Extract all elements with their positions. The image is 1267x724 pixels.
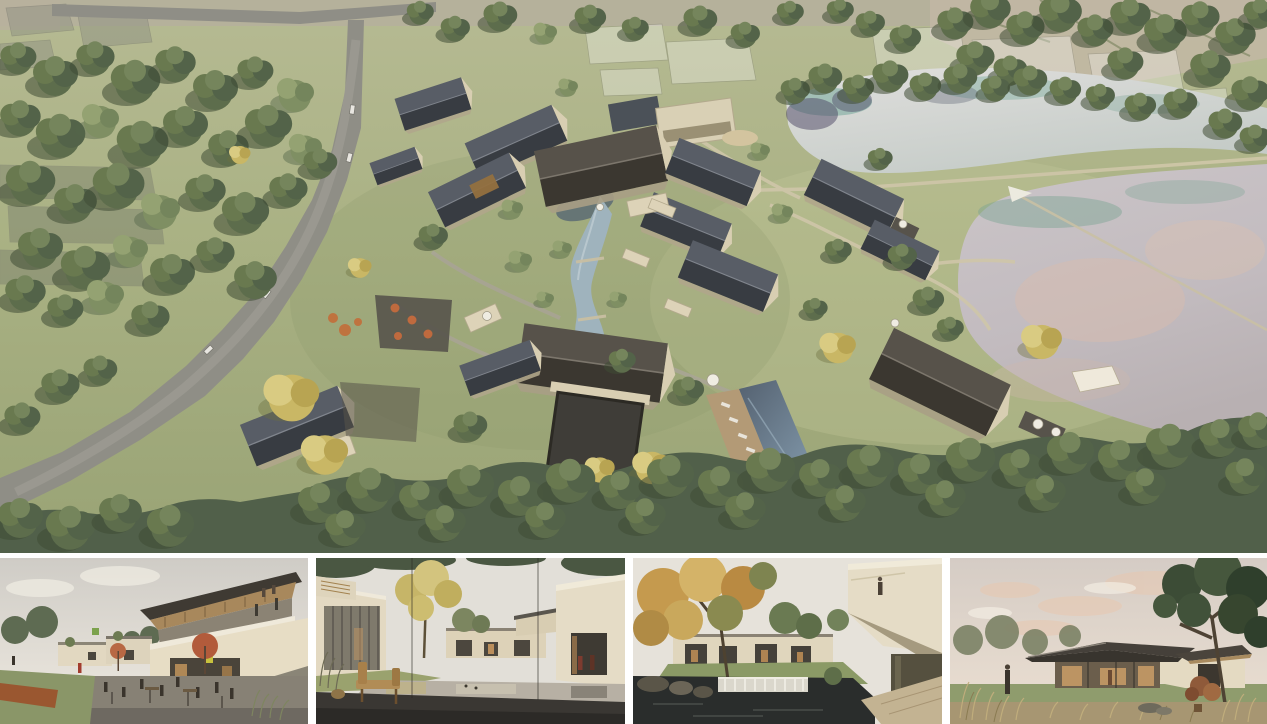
- terrace-person: [878, 577, 883, 595]
- shrub: [824, 667, 842, 685]
- aerial-masterplan-illustration: [0, 0, 1267, 553]
- thumbnail-garden-weir: [633, 558, 942, 724]
- people: [1005, 664, 1010, 694]
- courtyard-pond-illustration: [316, 558, 625, 724]
- right-building: [556, 574, 625, 688]
- street-plaza-illustration: [0, 558, 308, 724]
- pond: [633, 676, 875, 724]
- thumbnail-dusk-pavilion: [950, 558, 1267, 724]
- thumbnail-street-plaza: [0, 558, 308, 724]
- rendering-collage: [0, 0, 1267, 724]
- thumbnail-courtyard-pond: [316, 558, 625, 724]
- garden-weir-illustration: [633, 558, 942, 724]
- aerial-masterplan-panel: [0, 0, 1267, 553]
- dusk-pavilion-illustration: [950, 558, 1267, 724]
